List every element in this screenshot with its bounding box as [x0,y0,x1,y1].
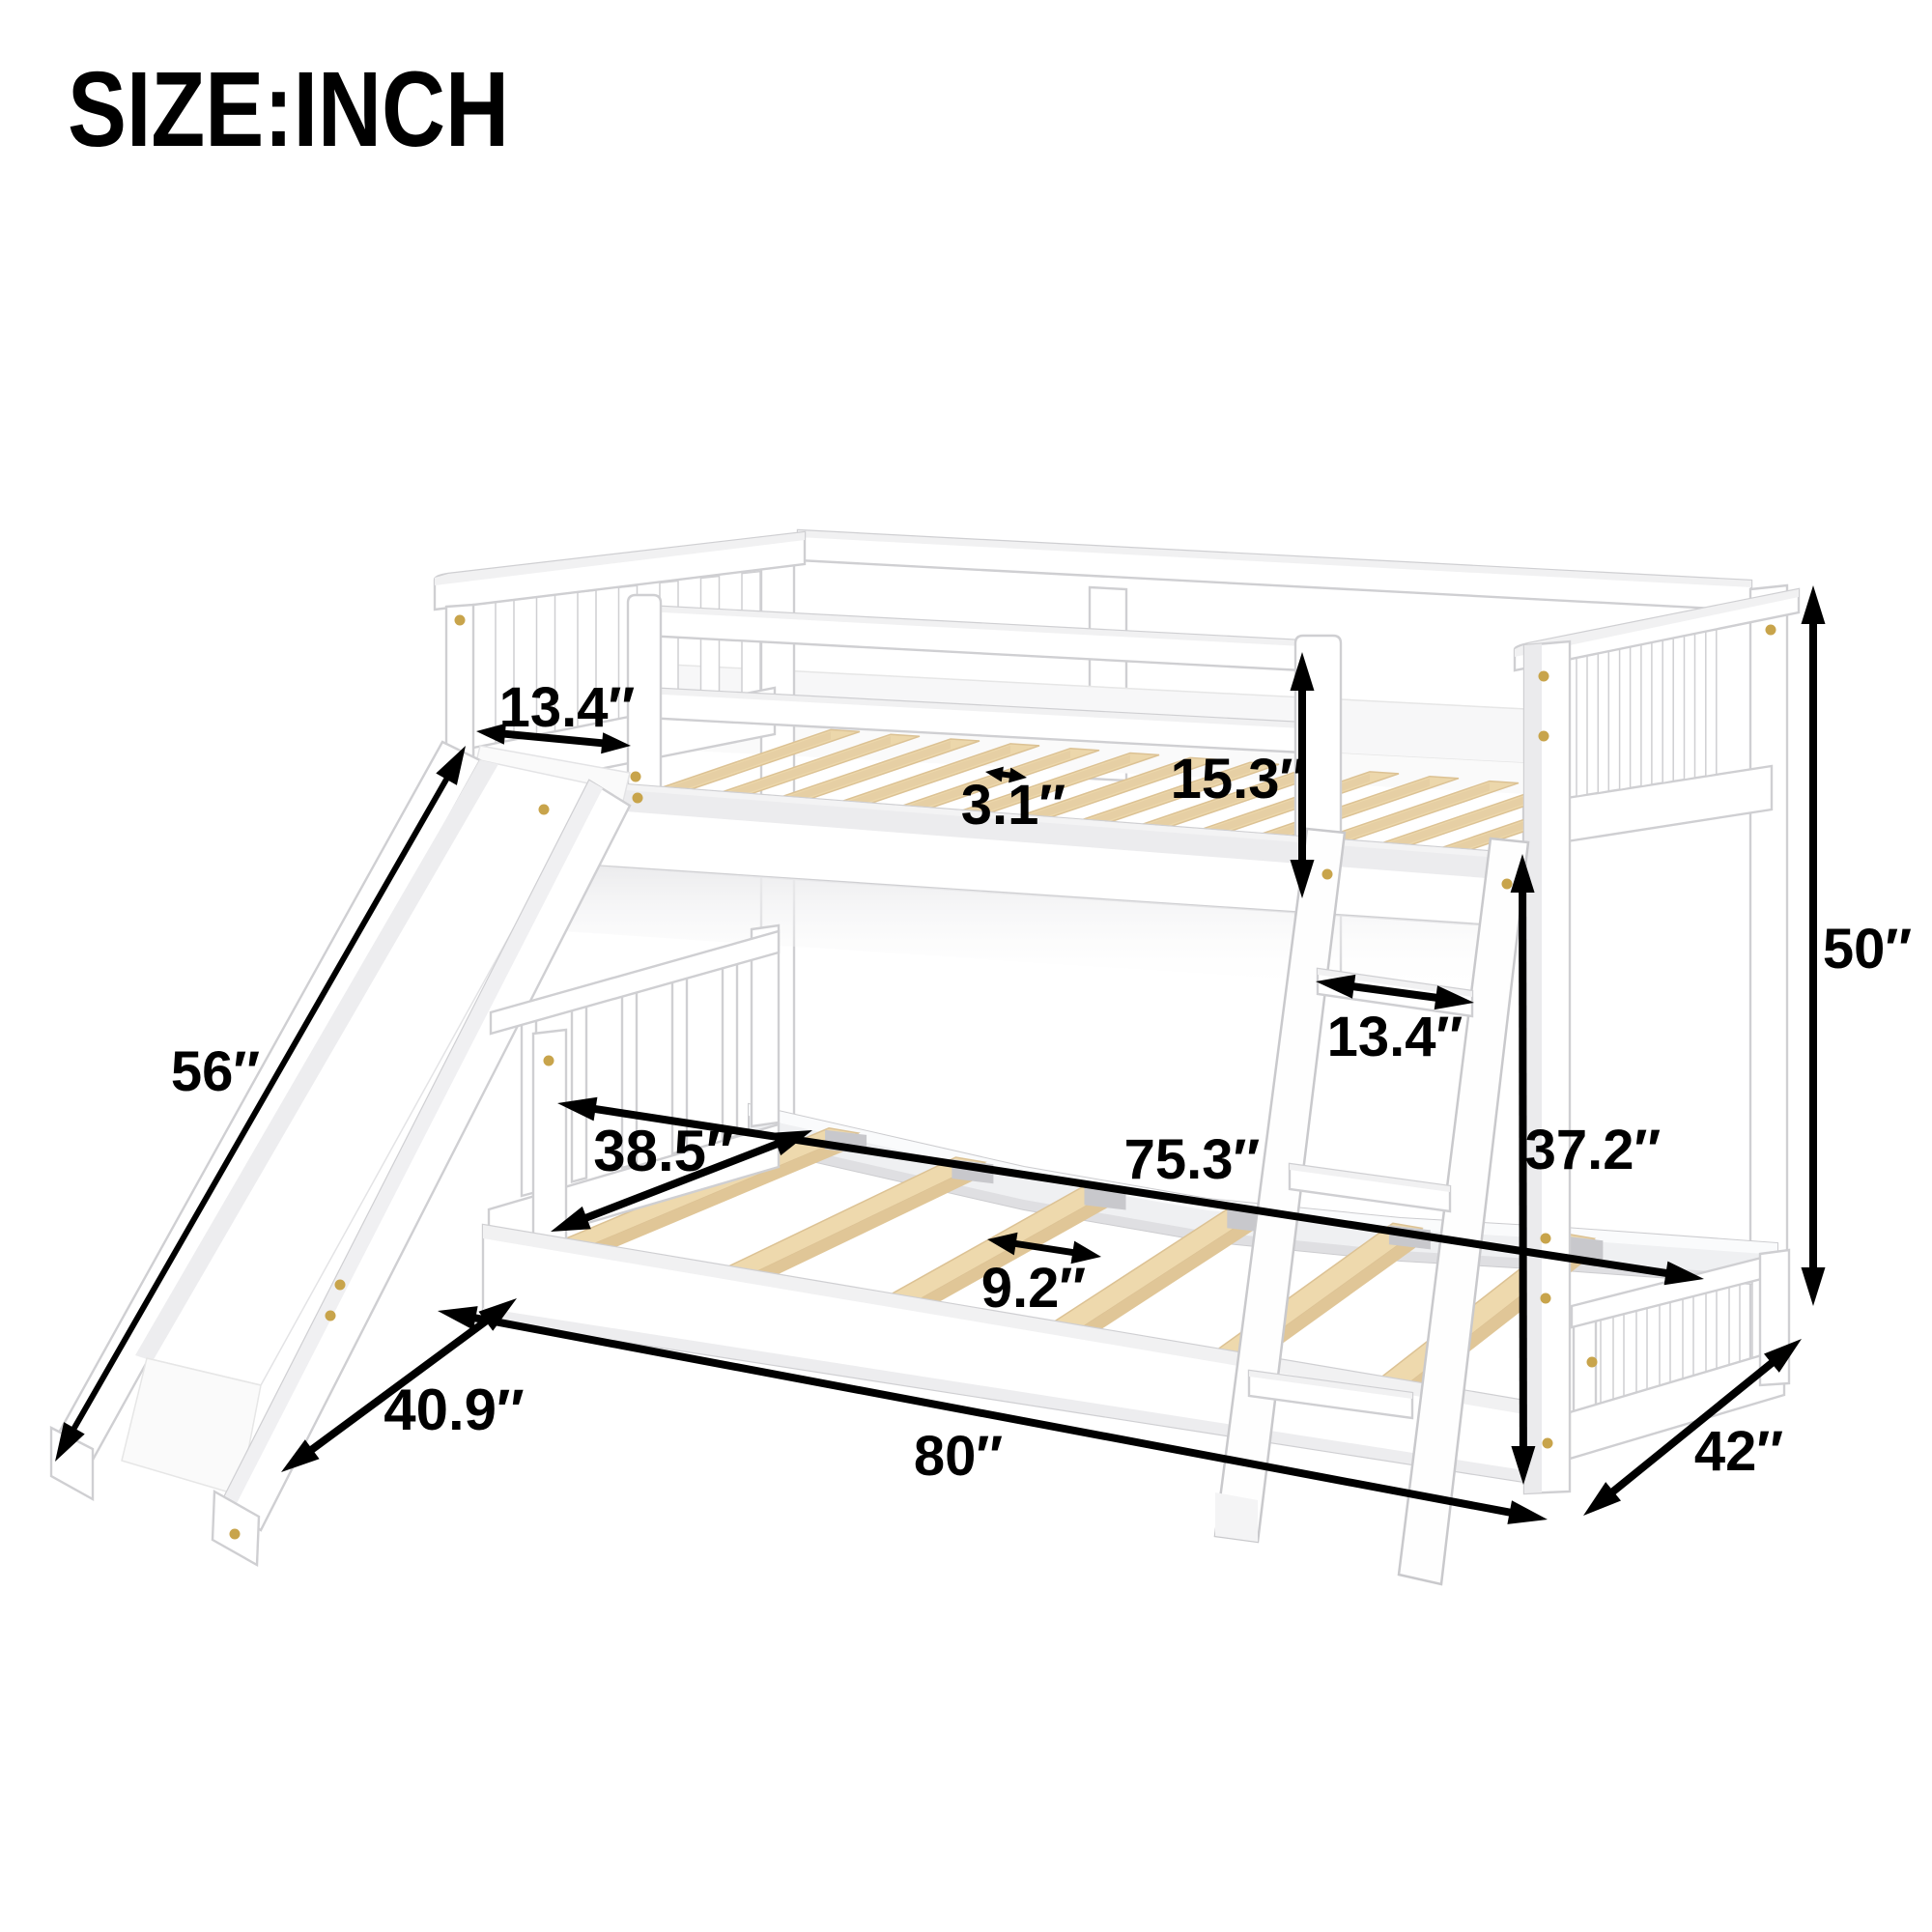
svg-text:9.2″: 9.2″ [981,1257,1086,1320]
svg-text:56″: 56″ [171,1040,260,1103]
svg-text:42″: 42″ [1694,1420,1783,1483]
svg-text:40.9″: 40.9″ [384,1378,525,1442]
svg-text:80″: 80″ [914,1425,1003,1488]
svg-text:13.4″: 13.4″ [499,676,636,739]
svg-text:50″: 50″ [1823,918,1912,980]
svg-text:75.3″: 75.3″ [1124,1128,1261,1191]
svg-text:SIZE:INCH: SIZE:INCH [68,50,509,169]
svg-text:3.1″: 3.1″ [961,774,1065,837]
svg-text:13.4″: 13.4″ [1327,1006,1463,1068]
svg-text:37.2″: 37.2″ [1525,1119,1662,1181]
svg-text:15.3″: 15.3″ [1171,748,1307,810]
